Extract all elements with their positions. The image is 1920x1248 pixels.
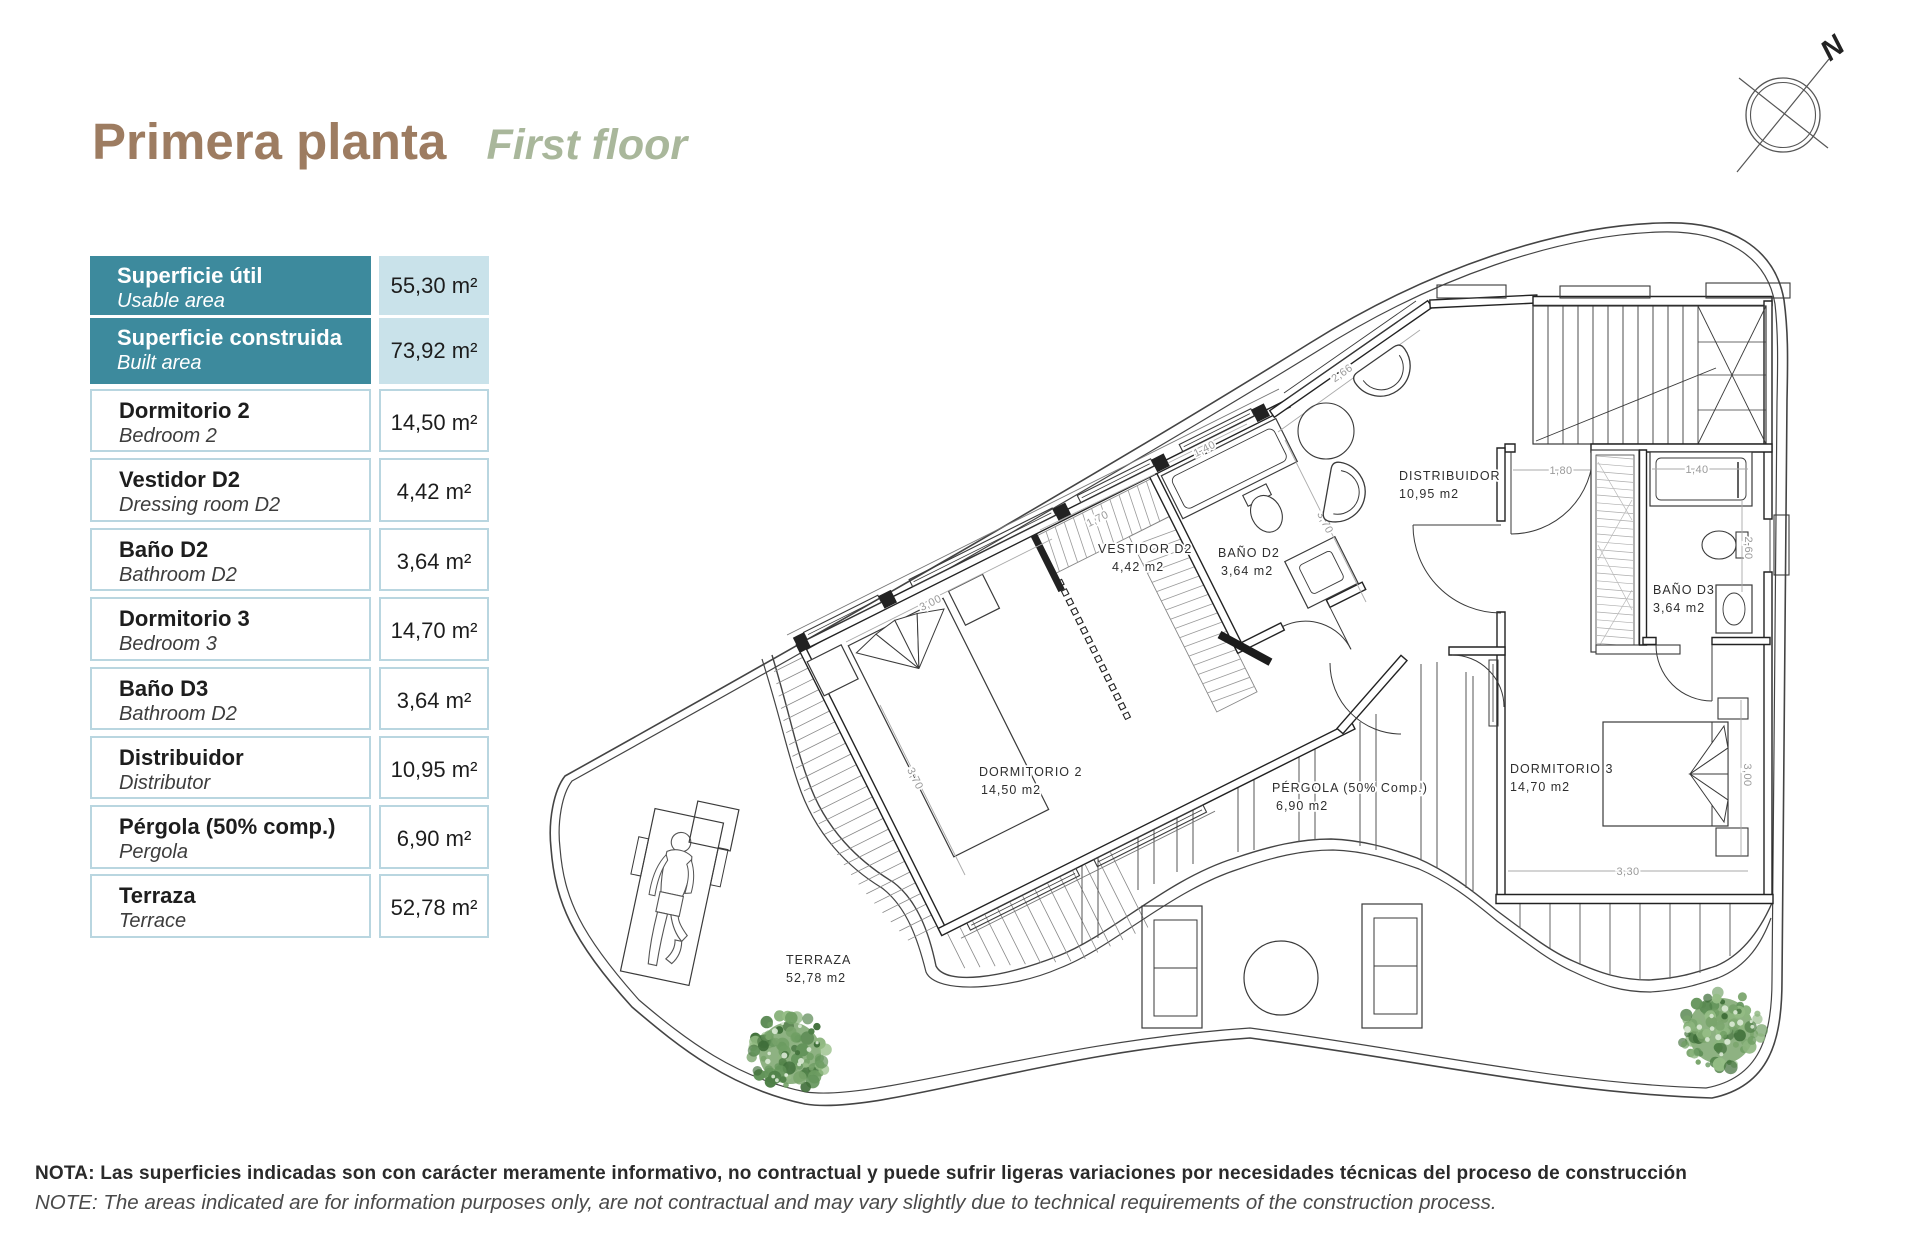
svg-text:6,90 m2: 6,90 m2: [1276, 799, 1328, 813]
svg-text:TERRAZA: TERRAZA: [786, 953, 851, 967]
svg-text:3,64 m2: 3,64 m2: [1221, 564, 1273, 578]
svg-text:52,78 m2: 52,78 m2: [786, 971, 846, 985]
svg-text:1,40: 1,40: [1685, 464, 1708, 476]
svg-text:BAÑO D2: BAÑO D2: [1218, 546, 1280, 560]
svg-text:14,70 m2: 14,70 m2: [1510, 780, 1570, 794]
svg-text:DISTRIBUIDOR: DISTRIBUIDOR: [1399, 469, 1501, 483]
svg-text:3,30: 3,30: [1616, 866, 1639, 878]
svg-text:4,42 m2: 4,42 m2: [1112, 560, 1164, 574]
svg-text:2,60: 2,60: [1742, 536, 1754, 559]
svg-text:N: N: [1815, 29, 1852, 68]
svg-text:PÉRGOLA (50% Comp.): PÉRGOLA (50% Comp.): [1272, 780, 1428, 795]
svg-text:BAÑO D3: BAÑO D3: [1653, 583, 1715, 597]
svg-text:1,80: 1,80: [1549, 465, 1572, 477]
svg-text:3,00: 3,00: [1741, 763, 1753, 786]
svg-text:3,64 m2: 3,64 m2: [1653, 601, 1705, 615]
svg-text:DORMITORIO 3: DORMITORIO 3: [1510, 762, 1613, 776]
svg-text:DORMITORIO 2: DORMITORIO 2: [979, 765, 1082, 779]
svg-text:2,66: 2,66: [1329, 362, 1355, 385]
svg-text:10,95 m2: 10,95 m2: [1399, 487, 1459, 501]
svg-text:14,50 m2: 14,50 m2: [981, 783, 1041, 797]
svg-text:VESTIDOR D2: VESTIDOR D2: [1098, 542, 1192, 556]
